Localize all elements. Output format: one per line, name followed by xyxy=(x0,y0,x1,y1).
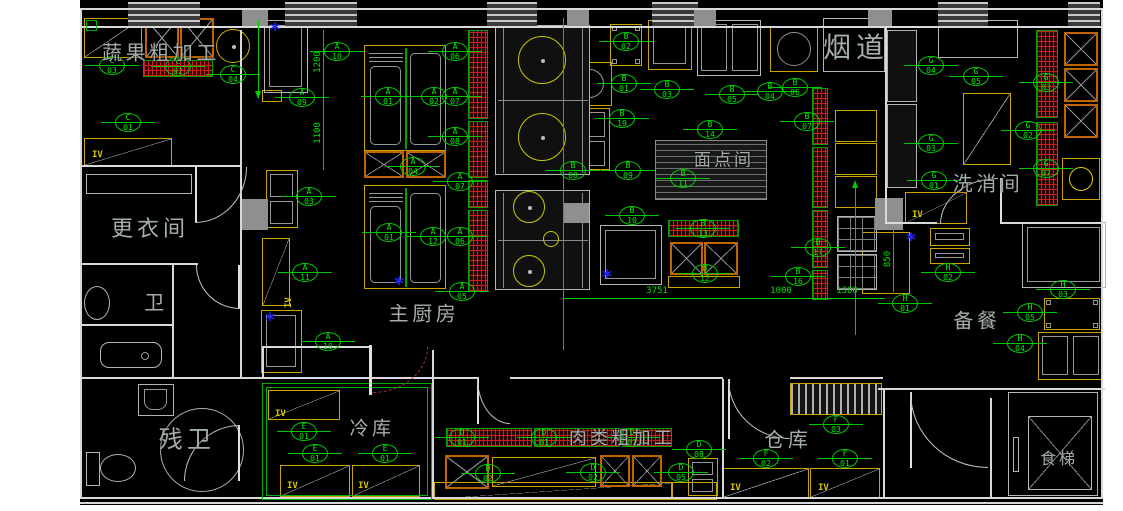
marker-letter: A xyxy=(278,263,332,272)
marker-letter: B xyxy=(599,32,653,41)
marker-number: 02 xyxy=(1001,131,1055,140)
marker-letter: C xyxy=(101,113,155,122)
center-dot xyxy=(232,45,236,49)
structural-column xyxy=(567,8,589,28)
marker-letter: A xyxy=(301,332,355,341)
inner-frame xyxy=(935,233,964,240)
marker-letter: A xyxy=(435,282,489,291)
wall xyxy=(1000,222,1103,224)
tub-drain xyxy=(141,352,149,360)
marker-letter: D xyxy=(517,428,571,437)
marker-letter: B xyxy=(683,120,737,129)
wall xyxy=(80,497,1103,499)
round-equipment xyxy=(777,32,811,66)
center-dot xyxy=(541,59,545,63)
room-label: 更衣间 xyxy=(111,211,189,243)
dimension-line xyxy=(893,228,894,292)
marker-letter: A xyxy=(428,87,482,96)
room-label: 备餐 xyxy=(953,305,1000,334)
wall xyxy=(722,379,724,499)
dimension-value: 3751 xyxy=(632,286,682,296)
marker-D-08: D08 xyxy=(672,440,726,460)
marker-number: 02 xyxy=(461,474,515,483)
wall xyxy=(885,222,937,224)
marker-A-07: A07 xyxy=(428,87,482,107)
marker-number: 01 xyxy=(101,123,155,132)
round-equipment xyxy=(518,36,566,84)
marker-letter: G xyxy=(904,134,958,143)
wall xyxy=(262,348,264,379)
marker-letter: E xyxy=(358,444,412,453)
marker-A-06: A06 xyxy=(433,227,487,247)
equipment xyxy=(697,20,761,76)
grade-label-iv: IV xyxy=(287,481,303,491)
marker-number: 14 xyxy=(683,130,737,139)
marker-H-05: H05 xyxy=(1003,303,1057,323)
marker-A-08: A08 xyxy=(428,127,482,147)
marker-letter: D xyxy=(672,440,726,449)
grade-label-iv: IV xyxy=(730,483,746,493)
center-dot xyxy=(528,206,532,210)
wall xyxy=(432,350,434,499)
marker-A-03: A03 xyxy=(282,187,336,207)
marker-letter: G xyxy=(949,67,1003,76)
marker-A-11: A11 xyxy=(278,263,332,283)
fridge-door xyxy=(370,206,401,283)
marker-letter: A xyxy=(275,88,329,97)
equipment xyxy=(835,110,877,142)
structural-column xyxy=(875,198,903,230)
marker-C-01: C01 xyxy=(101,113,155,133)
marker-G-05: G05 xyxy=(949,67,1003,87)
wall xyxy=(172,265,174,379)
wall-hatch xyxy=(487,2,537,28)
outlet-star-symbol: * xyxy=(265,315,279,329)
structural-column xyxy=(563,203,589,223)
marker-E-01: E01 xyxy=(277,422,331,442)
marker-number: 10 xyxy=(605,216,659,225)
structural-column xyxy=(694,8,716,28)
marker-letter: B xyxy=(640,80,694,89)
marker-D-02: D02 xyxy=(461,464,515,484)
marker-number: 02 xyxy=(739,459,793,468)
equipment xyxy=(100,454,136,482)
dimension-value: 1000 xyxy=(756,286,806,296)
marker-number: 07 xyxy=(1019,169,1073,178)
door-panel xyxy=(701,24,727,71)
marker-number: 03 xyxy=(282,197,336,206)
wall xyxy=(80,8,1103,10)
marker-B-19: B19 xyxy=(595,109,649,129)
marker-number: 10 xyxy=(301,342,355,351)
wall-hatch xyxy=(652,2,698,28)
marker-A-04: A04 xyxy=(386,157,440,177)
corner-block xyxy=(1093,323,1098,328)
marker-letter: G xyxy=(1019,73,1073,82)
marker-letter: E xyxy=(277,422,331,431)
dimension-value: 1300 xyxy=(822,286,872,296)
corner-block xyxy=(1046,323,1051,328)
corner-block xyxy=(635,59,640,64)
marker-letter: A xyxy=(433,172,487,181)
round-equipment xyxy=(216,29,250,63)
marker-letter: H xyxy=(1003,303,1057,312)
marker-letter: B xyxy=(595,109,649,118)
vent-louvre xyxy=(369,190,403,202)
wall xyxy=(80,26,1103,28)
wall-hatch xyxy=(1068,2,1100,28)
marker-H-04: H04 xyxy=(993,334,1047,354)
marker-B-09: B09 xyxy=(601,161,655,181)
wall xyxy=(80,8,82,499)
cold-room-wall xyxy=(86,20,97,31)
marker-G-03: G03 xyxy=(904,134,958,154)
marker-letter: H xyxy=(1036,280,1090,289)
marker-H-02: H02 xyxy=(921,263,975,283)
outlet-star-symbol: * xyxy=(906,235,920,249)
wall-hatch xyxy=(938,2,988,28)
marker-B-07: B07 xyxy=(780,112,834,132)
marker-number: 02 xyxy=(921,273,975,282)
marker-letter: D xyxy=(566,463,620,472)
round-equipment xyxy=(513,191,545,223)
marker-A-10: A10 xyxy=(310,42,364,62)
door-panel xyxy=(1073,336,1099,375)
marker-number: 16 xyxy=(771,277,825,286)
room-label: 洗消间 xyxy=(953,168,1024,197)
outlet-star-symbol: * xyxy=(270,25,284,39)
equipment xyxy=(930,228,970,246)
equipment xyxy=(86,174,192,194)
marker-C-04: C04 xyxy=(206,65,260,85)
equipment xyxy=(1022,222,1106,288)
equipment xyxy=(930,248,970,264)
utility-line xyxy=(258,20,259,98)
marker-letter: B xyxy=(601,161,655,170)
marker-B-02: B02 xyxy=(599,32,653,52)
corner-block xyxy=(1093,300,1098,305)
structural-column xyxy=(242,8,268,28)
utility-line xyxy=(855,185,856,335)
marker-number: 19 xyxy=(595,119,649,128)
room-label: 烟道 xyxy=(823,26,889,66)
marker-number: 01 xyxy=(818,459,872,468)
utility-line xyxy=(563,18,564,350)
room-label: 仓库 xyxy=(764,424,811,453)
marker-number: 10 xyxy=(310,52,364,61)
marker-H-01: H01 xyxy=(878,294,932,314)
marker-number: 17 xyxy=(791,248,845,257)
round-equipment xyxy=(518,113,566,161)
marker-number: 03 xyxy=(809,425,863,434)
marker-B-14: B14 xyxy=(683,120,737,140)
marker-number: 05 xyxy=(1003,313,1057,322)
marker-F-03: F03 xyxy=(809,415,863,435)
grade-label-iv: IV xyxy=(358,481,374,491)
dimension-line xyxy=(563,298,885,299)
marker-number: 03 xyxy=(640,90,694,99)
marker-B-10: B10 xyxy=(605,206,659,226)
wall xyxy=(80,502,1103,504)
outlet-star-symbol: * xyxy=(602,272,616,286)
room-label: 食梯 xyxy=(1040,445,1078,469)
marker-D-01: D01 xyxy=(517,428,571,448)
center-dot xyxy=(528,270,532,274)
marker-number: 02 xyxy=(151,67,205,76)
marker-number: 04 xyxy=(206,75,260,84)
marker-H-03: H03 xyxy=(1036,280,1090,300)
marker-number: 06 xyxy=(428,52,482,61)
marker-number: 03 xyxy=(1036,290,1090,299)
equipment xyxy=(84,286,110,320)
marker-number: 12 xyxy=(678,274,732,283)
grade-label-iv: IV xyxy=(92,150,108,160)
grade-label-iv: IV xyxy=(275,409,291,419)
marker-number: 01 xyxy=(435,438,489,447)
marker-number: 08 xyxy=(428,137,482,146)
marker-letter: B xyxy=(791,238,845,247)
marker-B-13: B13 xyxy=(676,219,730,239)
marker-number: 03 xyxy=(904,144,958,153)
marker-number: 08 xyxy=(546,171,600,180)
marker-B-17: B17 xyxy=(791,238,845,258)
marker-D-01: D01 xyxy=(435,428,489,448)
marker-letter: A xyxy=(428,127,482,136)
wall xyxy=(510,377,723,379)
marker-letter: H xyxy=(993,334,1047,343)
marker-letter: A xyxy=(310,42,364,51)
grade-label-iv: IV xyxy=(912,210,928,220)
round-equipment xyxy=(513,255,545,287)
marker-letter: D xyxy=(435,428,489,437)
equipment xyxy=(86,452,100,486)
structural-column xyxy=(868,8,892,28)
wall xyxy=(80,324,172,326)
marker-B-06: B06 xyxy=(768,78,822,98)
equipment xyxy=(1038,332,1102,380)
marker-letter: D xyxy=(461,464,515,473)
equipment xyxy=(138,384,174,416)
room-label: 主厨房 xyxy=(389,298,460,327)
marker-number: 04 xyxy=(386,167,440,176)
marker-A-06: A06 xyxy=(428,42,482,62)
marker-letter: B xyxy=(676,219,730,228)
basin-bowl xyxy=(144,389,167,410)
marker-B-08: B08 xyxy=(546,161,600,181)
marker-number: 01 xyxy=(288,454,342,463)
marker-letter: C xyxy=(206,65,260,74)
marker-letter: F xyxy=(818,449,872,458)
marker-A-07: A07 xyxy=(433,172,487,192)
wall-hatch xyxy=(285,2,357,28)
marker-B-11: B11 xyxy=(656,169,710,189)
marker-G-03: G03 xyxy=(1019,73,1073,93)
marker-A-09: A09 xyxy=(275,88,329,108)
wall xyxy=(80,263,198,265)
marker-number: 05 xyxy=(654,473,708,482)
marker-number: 07 xyxy=(428,97,482,106)
marker-number: 02 xyxy=(566,473,620,482)
sink-basin xyxy=(1064,104,1098,138)
marker-number: 03 xyxy=(85,66,139,75)
structural-column xyxy=(242,199,268,230)
marker-letter: H xyxy=(921,263,975,272)
marker-E-01: E01 xyxy=(358,444,412,464)
marker-number: 06 xyxy=(433,237,487,246)
marker-letter: F xyxy=(809,415,863,424)
marker-number: 11 xyxy=(278,273,332,282)
inner-frame xyxy=(935,253,964,258)
marker-B-12: B12 xyxy=(678,264,732,284)
equipment xyxy=(837,254,877,290)
marker-G-07: G07 xyxy=(1019,159,1073,179)
wall xyxy=(790,377,883,379)
room-label: 面点间 xyxy=(694,146,754,171)
marker-number: 01 xyxy=(517,438,571,447)
marker-letter: A xyxy=(282,187,336,196)
dimension-value: 1100 xyxy=(313,113,323,153)
outlet-star-symbol: * xyxy=(394,279,408,293)
marker-number: 05 xyxy=(949,77,1003,86)
room-label: 冷库 xyxy=(350,414,395,441)
inner-frame xyxy=(653,25,686,64)
room-label: 肉类粗加工 xyxy=(569,424,675,450)
marker-B-03: B03 xyxy=(640,80,694,100)
marker-letter: B xyxy=(771,267,825,276)
marker-B-16: B16 xyxy=(771,267,825,287)
marker-E-01: E01 xyxy=(288,444,342,464)
marker-letter: E xyxy=(288,444,342,453)
marker-number: 07 xyxy=(780,122,834,131)
marker-letter: G xyxy=(1001,121,1055,130)
marker-number: 01 xyxy=(878,304,932,313)
marker-number: 07 xyxy=(433,182,487,191)
marker-A-10: A10 xyxy=(301,332,355,352)
marker-letter: H xyxy=(878,294,932,303)
marker-letter: B xyxy=(768,78,822,87)
marker-letter: B xyxy=(678,264,732,273)
marker-number: 02 xyxy=(599,42,653,51)
marker-letter: A xyxy=(433,227,487,236)
marker-number: 08 xyxy=(672,450,726,459)
wall xyxy=(1101,8,1103,499)
door-panel xyxy=(732,24,758,71)
wall xyxy=(432,377,479,379)
cad-screenshot: C03C02C04C01A10A09A03A11A10A01A02A04A01A… xyxy=(0,0,1123,511)
line-arrowhead xyxy=(255,91,261,99)
vent-louvre xyxy=(369,50,403,62)
round-equipment xyxy=(543,231,559,247)
corner-block xyxy=(612,59,617,64)
marker-number: 11 xyxy=(656,179,710,188)
marker-number: 04 xyxy=(993,344,1047,353)
cooking-range-hatch xyxy=(812,147,828,208)
room-label: 卫 xyxy=(144,287,168,316)
marker-F-01: F01 xyxy=(818,449,872,469)
marker-number: 09 xyxy=(275,98,329,107)
storage-shelf xyxy=(790,383,882,415)
wall xyxy=(878,388,1105,390)
room-label: 蔬果粗加工 xyxy=(102,37,220,66)
inner-frame xyxy=(1027,227,1100,282)
dimension-value: 850 xyxy=(883,239,893,279)
cooking-range-hatch xyxy=(468,210,488,292)
marker-letter: B xyxy=(780,112,834,121)
marker-letter: D xyxy=(654,463,708,472)
marker-D-02: D02 xyxy=(566,463,620,483)
room-label: 残卫 xyxy=(159,420,216,455)
grade-label-iv: IV xyxy=(818,483,834,493)
marker-letter: G xyxy=(1019,159,1073,168)
marker-G-02: G02 xyxy=(1001,121,1055,141)
grade-label-iv: IV xyxy=(284,292,294,308)
wall-hatch xyxy=(128,2,200,28)
frame-line xyxy=(498,100,588,101)
marker-letter: B xyxy=(605,206,659,215)
marker-number: 06 xyxy=(768,88,822,97)
marker-letter: B xyxy=(546,161,600,170)
center-dot xyxy=(541,136,545,140)
marker-number: 13 xyxy=(676,229,730,238)
wall xyxy=(990,398,992,499)
line-arrowhead xyxy=(852,180,858,188)
marker-D-05: D05 xyxy=(654,463,708,483)
wall xyxy=(883,390,885,499)
floor-plan: C03C02C04C01A10A09A03A11A10A01A02A04A01A… xyxy=(0,0,1123,511)
equipment xyxy=(835,143,877,175)
marker-letter: A xyxy=(386,157,440,166)
marker-letter: G xyxy=(904,56,958,65)
marker-number: 09 xyxy=(601,171,655,180)
equipment xyxy=(1013,437,1019,472)
marker-letter: A xyxy=(428,42,482,51)
marker-number: 03 xyxy=(1019,83,1073,92)
equipment xyxy=(100,342,162,368)
marker-number: 01 xyxy=(277,432,331,441)
sink-basin xyxy=(1064,32,1098,66)
marker-number: 01 xyxy=(358,454,412,463)
